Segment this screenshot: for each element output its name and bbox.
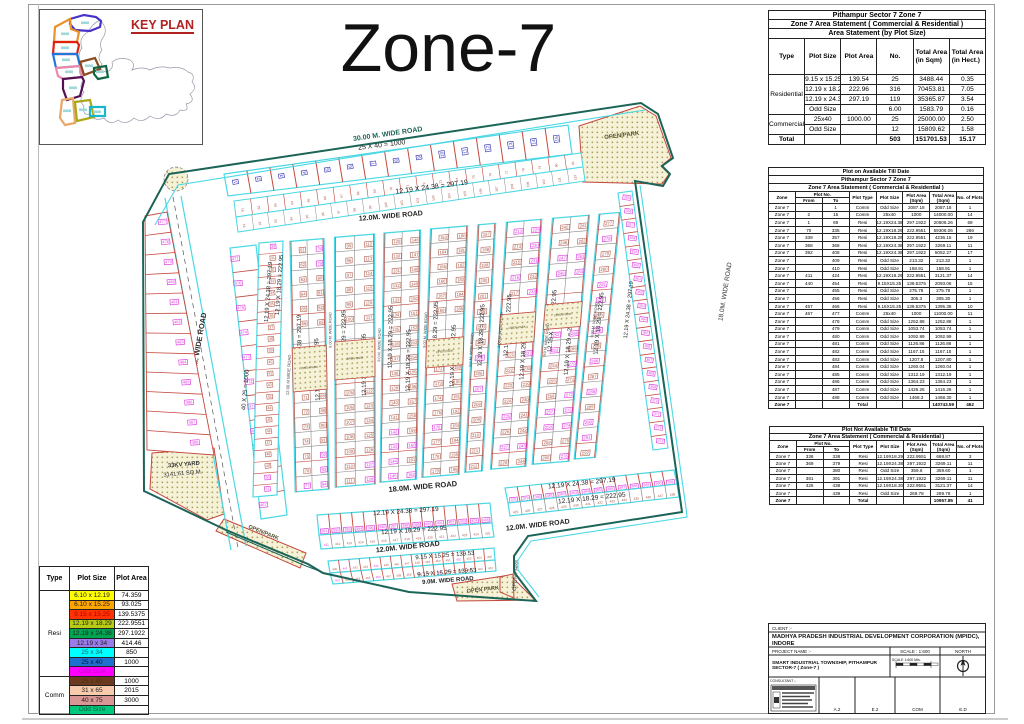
svg-text:44: 44 xyxy=(267,406,271,410)
svg-text:275: 275 xyxy=(562,438,570,444)
svg-text:194: 194 xyxy=(451,437,459,443)
svg-text:257: 257 xyxy=(546,409,554,415)
svg-text:108: 108 xyxy=(510,183,515,189)
svg-text:39: 39 xyxy=(269,348,273,352)
svg-text:208: 208 xyxy=(474,401,482,407)
svg-text:370: 370 xyxy=(652,398,658,403)
svg-text:379: 379 xyxy=(523,496,529,501)
svg-text:418: 418 xyxy=(404,537,410,541)
svg-text:273: 273 xyxy=(564,407,572,413)
svg-text:364: 364 xyxy=(640,317,646,322)
svg-text:40: 40 xyxy=(268,360,272,364)
svg-text:373: 373 xyxy=(657,439,663,444)
svg-text:372: 372 xyxy=(655,425,661,430)
svg-text:206: 206 xyxy=(475,371,483,377)
svg-text:288: 288 xyxy=(588,389,596,395)
svg-text:488: 488 xyxy=(191,439,199,445)
svg-text:436: 436 xyxy=(646,495,652,500)
svg-text:105: 105 xyxy=(346,390,354,396)
svg-text:209: 209 xyxy=(473,417,481,423)
svg-text:258: 258 xyxy=(545,424,553,430)
svg-text:388: 388 xyxy=(631,484,637,489)
svg-text:394: 394 xyxy=(356,527,362,531)
svg-text:64: 64 xyxy=(301,291,306,296)
svg-text:109: 109 xyxy=(526,181,531,187)
svg-text:231: 231 xyxy=(531,258,539,264)
svg-text:128: 128 xyxy=(366,476,374,482)
svg-text:274: 274 xyxy=(563,423,571,429)
svg-text:126: 126 xyxy=(366,447,374,453)
svg-text:411: 411 xyxy=(324,543,330,547)
svg-text:192: 192 xyxy=(452,408,460,414)
svg-text:287: 287 xyxy=(589,374,597,380)
svg-text:211: 211 xyxy=(471,448,479,454)
svg-text:246: 246 xyxy=(560,240,568,246)
svg-text:76: 76 xyxy=(305,468,310,473)
svg-text:91: 91 xyxy=(242,223,246,227)
svg-text:227: 227 xyxy=(501,445,509,451)
svg-text:486: 486 xyxy=(186,399,194,405)
svg-text:426: 426 xyxy=(525,509,531,514)
svg-text:199: 199 xyxy=(481,262,489,268)
svg-text:457: 457 xyxy=(386,574,392,578)
svg-text:483: 483 xyxy=(177,339,185,345)
svg-text:61: 61 xyxy=(300,247,305,252)
svg-text:245: 245 xyxy=(561,224,569,230)
svg-text:73: 73 xyxy=(304,424,309,429)
svg-text:68: 68 xyxy=(356,191,360,195)
svg-text:18.0M. WIDE ROAD: 18.0M. WIDE ROAD xyxy=(717,262,733,322)
svg-text:278: 278 xyxy=(603,236,611,242)
svg-text:160: 160 xyxy=(408,442,416,448)
svg-text:447: 447 xyxy=(404,561,410,565)
svg-text:272: 272 xyxy=(566,392,574,398)
svg-text:77: 77 xyxy=(305,483,310,488)
svg-text:247: 247 xyxy=(559,255,567,261)
svg-text:213: 213 xyxy=(515,228,523,234)
svg-text:256: 256 xyxy=(547,393,555,399)
svg-text:222: 222 xyxy=(506,367,514,373)
svg-text:195: 195 xyxy=(451,452,459,458)
svg-text:210: 210 xyxy=(472,432,480,438)
svg-text:260: 260 xyxy=(542,455,550,461)
svg-text:382: 382 xyxy=(559,492,565,497)
svg-text:422: 422 xyxy=(450,534,456,538)
svg-text:477: 477 xyxy=(159,219,167,225)
svg-text:161: 161 xyxy=(408,457,416,463)
svg-text:356: 356 xyxy=(625,209,631,214)
svg-text:78: 78 xyxy=(317,246,322,251)
svg-text:216: 216 xyxy=(512,275,520,281)
svg-text:174: 174 xyxy=(434,395,442,401)
svg-text:117: 117 xyxy=(366,315,373,321)
svg-text:65: 65 xyxy=(306,198,310,202)
svg-text:475: 475 xyxy=(237,305,245,311)
svg-text:440: 440 xyxy=(332,567,338,571)
svg-text:63: 63 xyxy=(301,277,306,282)
svg-text:452: 452 xyxy=(335,578,341,582)
svg-text:64: 64 xyxy=(290,201,294,205)
svg-text:151: 151 xyxy=(411,310,419,316)
svg-text:292: 292 xyxy=(582,450,590,456)
svg-text:358: 358 xyxy=(629,236,635,241)
svg-text:181: 181 xyxy=(458,248,466,254)
svg-text:405: 405 xyxy=(483,518,489,522)
svg-text:92: 92 xyxy=(258,221,262,225)
svg-text:81: 81 xyxy=(318,290,323,295)
svg-text:244: 244 xyxy=(518,459,526,465)
svg-text:446: 446 xyxy=(394,562,400,566)
svg-text:279: 279 xyxy=(602,251,610,257)
svg-text:162: 162 xyxy=(408,472,416,478)
svg-text:127: 127 xyxy=(366,462,374,468)
svg-text:441: 441 xyxy=(342,566,348,570)
svg-text:41: 41 xyxy=(268,371,272,375)
svg-text:93: 93 xyxy=(273,219,277,223)
svg-text:178: 178 xyxy=(432,454,440,460)
svg-text:191: 191 xyxy=(453,394,461,400)
svg-text:378: 378 xyxy=(510,498,516,503)
svg-text:141: 141 xyxy=(391,415,399,421)
svg-text:359: 359 xyxy=(631,249,637,254)
svg-text:427: 427 xyxy=(537,507,543,512)
svg-text:467: 467 xyxy=(260,502,268,508)
svg-text:226: 226 xyxy=(502,429,510,435)
svg-text:386: 386 xyxy=(607,487,613,492)
svg-text:30: 30 xyxy=(271,244,275,248)
svg-text:201: 201 xyxy=(479,293,487,299)
svg-text:466: 466 xyxy=(478,567,484,571)
svg-text:72: 72 xyxy=(303,409,308,414)
svg-text:166: 166 xyxy=(438,278,446,284)
svg-text:95: 95 xyxy=(347,243,352,248)
svg-text:355: 355 xyxy=(623,195,629,200)
svg-text:123: 123 xyxy=(366,403,374,409)
svg-text:90: 90 xyxy=(321,422,326,427)
svg-text:148: 148 xyxy=(411,266,419,272)
svg-text:9.0 M. WIDE ROAD: 9.0 M. WIDE ROAD xyxy=(377,328,382,362)
svg-text:390: 390 xyxy=(655,481,661,486)
svg-text:106: 106 xyxy=(478,188,483,194)
svg-text:110: 110 xyxy=(542,179,547,185)
svg-text:100: 100 xyxy=(384,202,389,208)
svg-text:286: 286 xyxy=(591,358,599,364)
svg-text:12.19 X 24.38 = 297.19: 12.19 X 24.38 = 297.19 xyxy=(623,281,635,339)
svg-text:369: 369 xyxy=(650,385,656,390)
svg-text:291: 291 xyxy=(583,435,591,441)
svg-text:363: 363 xyxy=(638,304,644,309)
svg-text:46: 46 xyxy=(267,429,271,433)
svg-text:416: 416 xyxy=(381,539,387,543)
svg-text:113: 113 xyxy=(366,256,373,262)
svg-text:182: 182 xyxy=(457,262,465,268)
svg-text:99: 99 xyxy=(347,302,352,307)
svg-text:31: 31 xyxy=(271,256,275,260)
svg-text:248: 248 xyxy=(557,270,565,276)
svg-text:176: 176 xyxy=(433,424,441,430)
svg-text:480: 480 xyxy=(168,279,176,285)
svg-text:159: 159 xyxy=(409,428,417,434)
svg-text:66: 66 xyxy=(323,196,327,200)
svg-text:357: 357 xyxy=(627,222,633,227)
svg-text:164: 164 xyxy=(439,249,447,255)
svg-text:484: 484 xyxy=(180,359,188,365)
svg-text:103: 103 xyxy=(431,195,436,201)
svg-text:62: 62 xyxy=(300,262,305,267)
svg-text:417: 417 xyxy=(393,538,399,542)
svg-text:414: 414 xyxy=(358,540,364,544)
svg-text:481: 481 xyxy=(171,299,179,305)
svg-text:42: 42 xyxy=(268,383,272,387)
svg-text:383: 383 xyxy=(571,491,577,496)
svg-text:158: 158 xyxy=(409,413,417,419)
svg-text:105: 105 xyxy=(463,190,468,196)
svg-text:271: 271 xyxy=(567,377,575,383)
svg-text:98: 98 xyxy=(352,207,356,211)
svg-text:75: 75 xyxy=(472,175,476,179)
svg-text:485: 485 xyxy=(183,379,191,385)
svg-text:391: 391 xyxy=(321,529,327,533)
svg-text:423: 423 xyxy=(462,533,468,537)
svg-text:262: 262 xyxy=(578,238,586,244)
svg-text:107: 107 xyxy=(494,186,499,192)
svg-text:47: 47 xyxy=(266,441,270,445)
svg-text:80: 80 xyxy=(318,275,323,280)
svg-text:443: 443 xyxy=(363,565,369,569)
svg-text:442: 442 xyxy=(353,565,359,569)
svg-text:139: 139 xyxy=(391,385,399,391)
svg-text:75: 75 xyxy=(304,453,309,458)
svg-text:384: 384 xyxy=(583,489,589,494)
svg-text:395: 395 xyxy=(367,526,373,530)
svg-text:93: 93 xyxy=(322,467,327,472)
svg-text:111: 111 xyxy=(347,478,354,484)
svg-text:132: 132 xyxy=(393,283,401,289)
svg-text:43: 43 xyxy=(267,395,271,399)
svg-text:276: 276 xyxy=(561,453,569,459)
svg-text:402: 402 xyxy=(448,520,454,524)
svg-text:97: 97 xyxy=(347,272,352,277)
svg-text:61: 61 xyxy=(240,208,244,212)
svg-text:225: 225 xyxy=(503,414,511,420)
svg-text:37: 37 xyxy=(269,325,273,329)
svg-text:70: 70 xyxy=(389,186,393,190)
svg-text:424: 424 xyxy=(473,532,479,536)
svg-text:173: 173 xyxy=(435,381,443,387)
svg-text:99: 99 xyxy=(368,205,372,209)
svg-text:67: 67 xyxy=(339,194,343,198)
svg-text:196: 196 xyxy=(450,467,458,473)
svg-text:106: 106 xyxy=(346,405,354,411)
svg-text:482: 482 xyxy=(174,319,182,325)
svg-text:413: 413 xyxy=(347,541,353,545)
svg-text:404: 404 xyxy=(471,519,477,523)
svg-text:167: 167 xyxy=(438,293,446,299)
svg-text:89: 89 xyxy=(320,408,325,413)
svg-text:149: 149 xyxy=(411,281,419,287)
svg-text:380: 380 xyxy=(535,495,541,500)
svg-text:261: 261 xyxy=(580,223,588,229)
svg-text:392: 392 xyxy=(333,528,339,532)
svg-text:381: 381 xyxy=(547,494,553,499)
svg-text:12.00 M WIDE ROAD: 12.00 M WIDE ROAD xyxy=(285,355,292,396)
svg-text:255: 255 xyxy=(548,378,556,384)
svg-text:165: 165 xyxy=(439,264,447,270)
svg-text:147: 147 xyxy=(412,252,420,258)
svg-text:425: 425 xyxy=(485,531,491,535)
svg-text:180: 180 xyxy=(458,233,466,239)
svg-text:110: 110 xyxy=(346,463,353,469)
svg-text:425: 425 xyxy=(513,510,519,515)
svg-text:365: 365 xyxy=(642,331,648,336)
svg-text:479: 479 xyxy=(165,259,173,265)
svg-text:281: 281 xyxy=(599,282,607,288)
svg-text:95: 95 xyxy=(305,214,309,218)
svg-text:368: 368 xyxy=(648,371,654,376)
svg-text:240: 240 xyxy=(522,397,530,403)
svg-text:214: 214 xyxy=(514,244,522,250)
svg-text:175: 175 xyxy=(434,410,442,416)
svg-text:437: 437 xyxy=(658,494,664,499)
svg-text:229: 229 xyxy=(533,227,541,233)
svg-text:129: 129 xyxy=(393,239,401,245)
svg-text:420: 420 xyxy=(427,535,433,539)
svg-text:476: 476 xyxy=(234,280,242,286)
svg-text:474: 474 xyxy=(240,329,248,335)
svg-text:50: 50 xyxy=(266,475,270,479)
svg-text:94: 94 xyxy=(322,481,327,486)
svg-text:108: 108 xyxy=(346,434,354,440)
svg-text:82: 82 xyxy=(318,305,323,310)
svg-text:143: 143 xyxy=(390,444,398,450)
svg-text:393: 393 xyxy=(344,527,350,531)
svg-text:65: 65 xyxy=(301,306,306,311)
svg-text:133: 133 xyxy=(392,297,400,303)
svg-text:74: 74 xyxy=(304,439,309,444)
svg-text:12.19 X 18.29 = 222.95: 12.19 X 18.29 = 222.95 xyxy=(406,328,413,392)
svg-text:478: 478 xyxy=(162,239,170,245)
svg-text:124: 124 xyxy=(366,418,374,424)
svg-text:259: 259 xyxy=(543,440,551,446)
svg-text:79: 79 xyxy=(317,261,322,266)
svg-text:444: 444 xyxy=(373,564,379,568)
svg-text:223: 223 xyxy=(505,383,513,389)
svg-text:131: 131 xyxy=(393,268,401,274)
svg-text:111: 111 xyxy=(557,177,562,183)
svg-text:140: 140 xyxy=(391,400,399,406)
svg-text:142: 142 xyxy=(390,429,398,435)
svg-text:467: 467 xyxy=(488,566,494,570)
svg-text:101: 101 xyxy=(400,200,405,206)
svg-text:145: 145 xyxy=(390,473,398,479)
svg-text:403: 403 xyxy=(460,519,466,523)
svg-text:421: 421 xyxy=(439,535,445,539)
svg-text:91: 91 xyxy=(321,437,326,442)
svg-text:289: 289 xyxy=(586,404,594,410)
svg-text:92: 92 xyxy=(321,452,326,457)
svg-text:290: 290 xyxy=(585,419,593,425)
svg-text:78: 78 xyxy=(521,168,525,172)
svg-text:455: 455 xyxy=(365,576,371,580)
svg-text:94: 94 xyxy=(289,217,293,221)
svg-text:83: 83 xyxy=(319,319,324,324)
svg-text:130: 130 xyxy=(393,253,401,259)
svg-text:215: 215 xyxy=(513,259,521,265)
svg-text:157: 157 xyxy=(409,398,417,404)
svg-text:239: 239 xyxy=(523,381,531,387)
svg-text:232: 232 xyxy=(530,273,538,279)
svg-text:264: 264 xyxy=(576,269,584,275)
svg-text:198: 198 xyxy=(482,247,490,253)
svg-text:254: 254 xyxy=(550,363,558,369)
svg-text:179: 179 xyxy=(432,468,440,474)
svg-text:366: 366 xyxy=(644,344,650,349)
svg-text:98: 98 xyxy=(347,287,352,292)
svg-text:114: 114 xyxy=(366,271,373,277)
svg-text:177: 177 xyxy=(433,439,441,445)
svg-text:360: 360 xyxy=(633,263,639,268)
svg-text:435: 435 xyxy=(633,496,639,501)
svg-text:371: 371 xyxy=(653,412,659,417)
svg-text:477: 477 xyxy=(232,256,240,262)
svg-text:456: 456 xyxy=(376,575,382,579)
svg-text:163: 163 xyxy=(440,235,448,241)
svg-text:63: 63 xyxy=(273,203,277,207)
svg-text:51: 51 xyxy=(265,487,269,491)
svg-text:62: 62 xyxy=(257,205,261,209)
svg-text:224: 224 xyxy=(504,398,512,404)
svg-text:116: 116 xyxy=(366,300,373,306)
svg-text:242: 242 xyxy=(520,428,528,434)
svg-text:81: 81 xyxy=(571,161,576,165)
svg-text:455: 455 xyxy=(487,555,493,559)
svg-text:150: 150 xyxy=(411,296,419,302)
svg-text:277: 277 xyxy=(605,220,613,226)
svg-text:197: 197 xyxy=(483,231,491,237)
svg-text:362: 362 xyxy=(637,290,643,295)
svg-text:415: 415 xyxy=(370,539,376,543)
svg-text:96: 96 xyxy=(321,212,325,216)
svg-text:185: 185 xyxy=(456,306,464,312)
svg-text:107: 107 xyxy=(346,419,354,425)
svg-text:207: 207 xyxy=(474,386,482,392)
svg-text:97: 97 xyxy=(337,210,341,214)
svg-text:233: 233 xyxy=(529,289,537,295)
svg-text:76: 76 xyxy=(488,172,492,176)
svg-text:230: 230 xyxy=(532,242,540,248)
svg-text:487: 487 xyxy=(189,419,197,425)
svg-text:459: 459 xyxy=(406,572,412,576)
svg-text:9.00 M. WIDE ROAD: 9.00 M. WIDE ROAD xyxy=(328,312,332,348)
svg-text:146: 146 xyxy=(412,237,420,243)
svg-text:243: 243 xyxy=(519,443,527,449)
svg-text:71: 71 xyxy=(303,394,308,399)
svg-text:445: 445 xyxy=(384,563,390,567)
svg-text:280: 280 xyxy=(600,266,608,272)
svg-text:12.19 X 18.29 = 222.95: 12.19 X 18.29 = 222.95 xyxy=(388,305,395,369)
svg-text:104: 104 xyxy=(447,193,452,199)
svg-text:473: 473 xyxy=(243,354,251,360)
svg-text:183: 183 xyxy=(457,277,465,283)
svg-text:361: 361 xyxy=(635,276,641,281)
svg-text:184: 184 xyxy=(456,291,464,297)
svg-text:367: 367 xyxy=(646,358,652,363)
svg-text:454: 454 xyxy=(477,556,483,560)
svg-text:115: 115 xyxy=(366,285,373,291)
svg-text:79: 79 xyxy=(538,165,542,169)
svg-text:109: 109 xyxy=(346,449,354,455)
svg-text:77: 77 xyxy=(505,170,509,174)
